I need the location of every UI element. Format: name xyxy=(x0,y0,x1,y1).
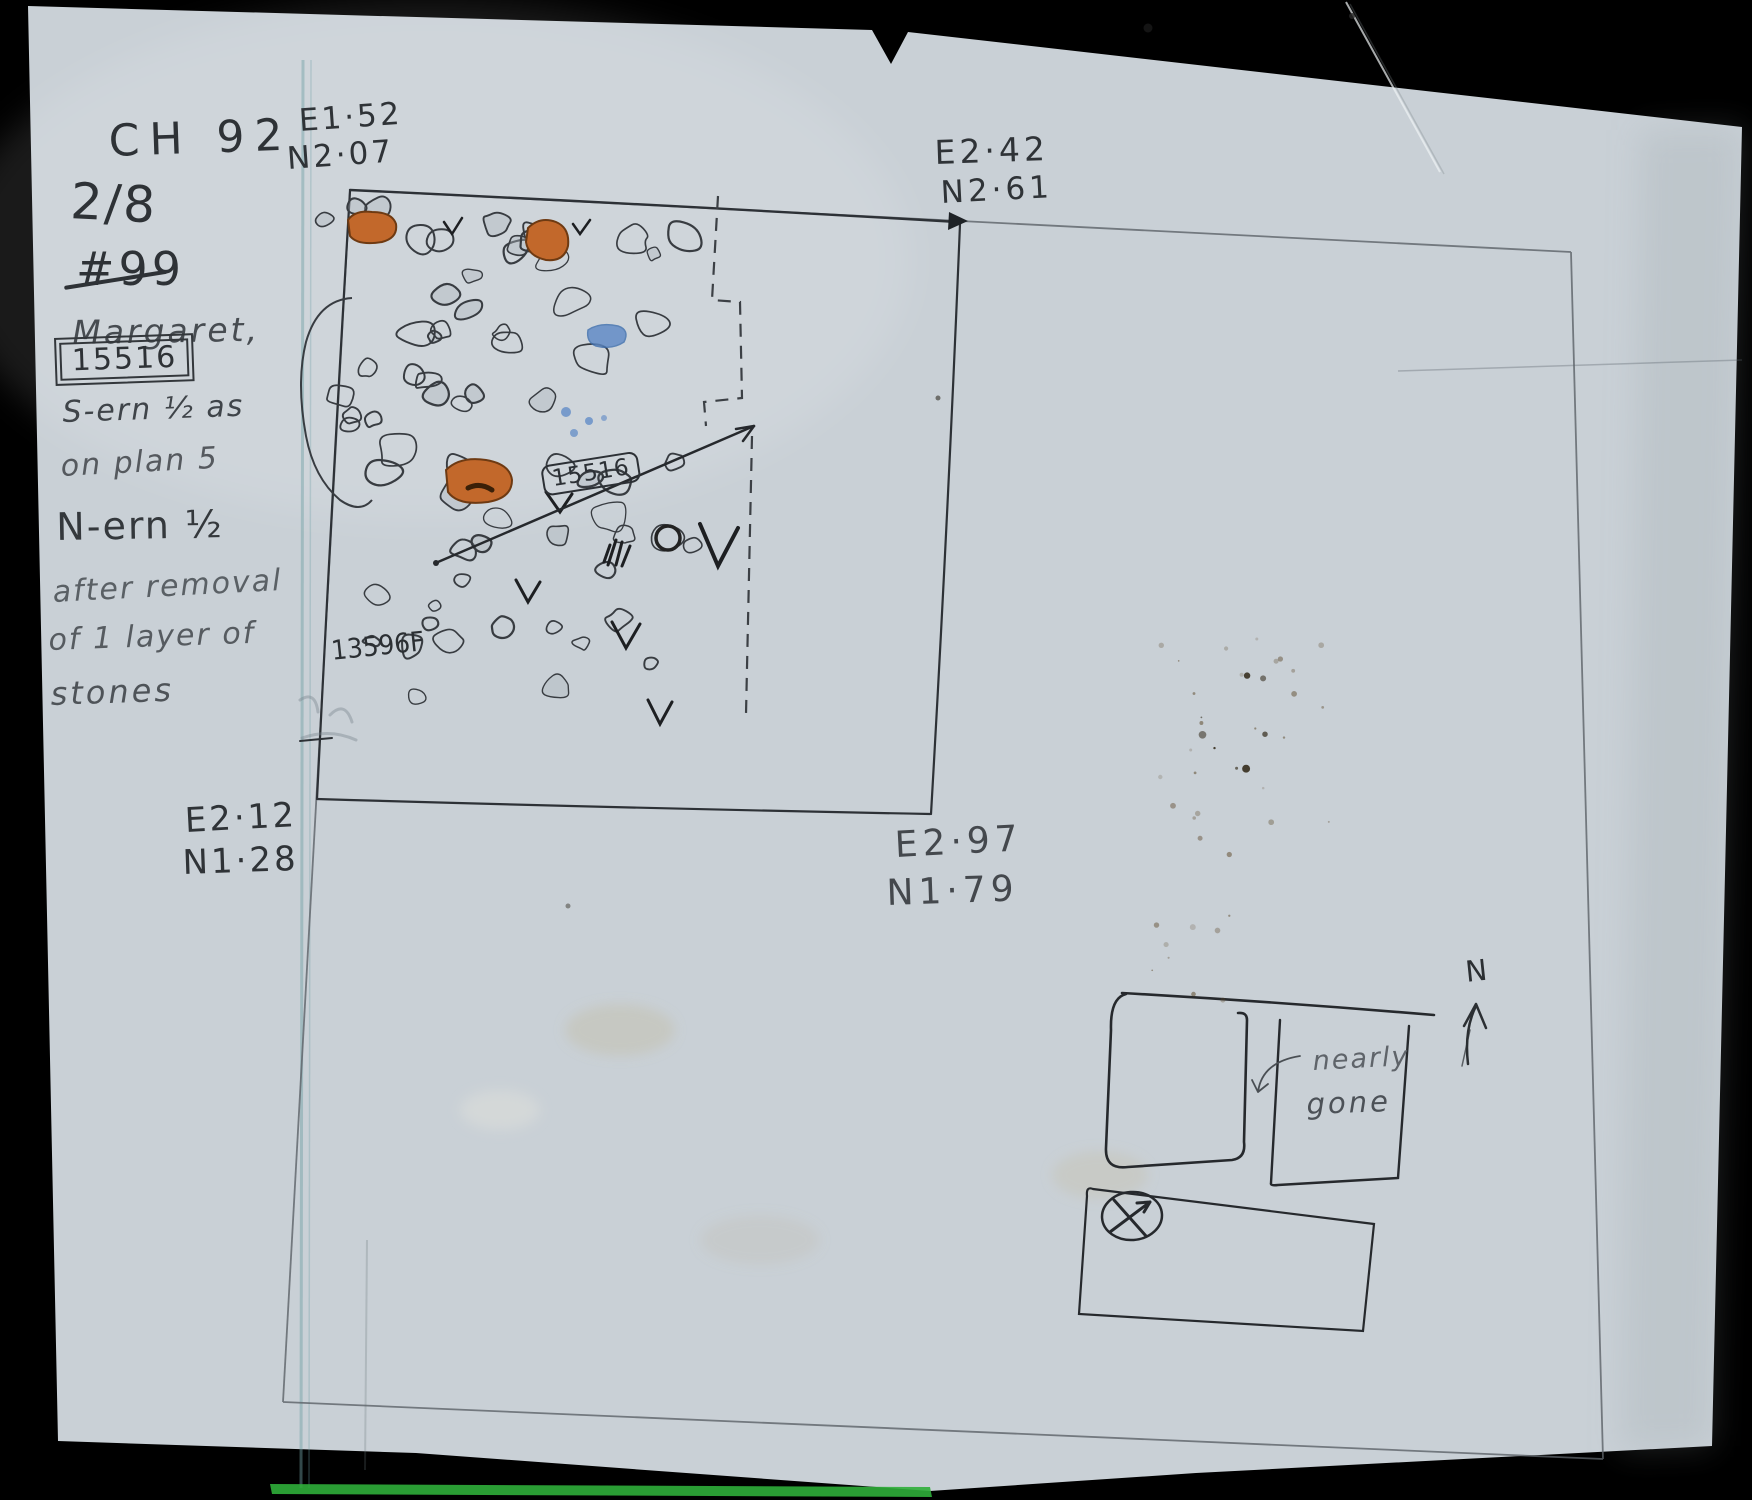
scanner-green-strip xyxy=(270,1484,932,1497)
stain-speckle xyxy=(1194,772,1197,775)
stain-speckle xyxy=(1191,992,1196,997)
arrow-origin-dot xyxy=(433,560,439,566)
stain-speckle xyxy=(1240,673,1244,677)
inset-note-line: gone xyxy=(1306,1087,1391,1119)
stain-speckle xyxy=(1198,836,1203,841)
site-code-annotation: CH 92 xyxy=(108,114,293,164)
inset-note-line: nearly xyxy=(1312,1043,1410,1075)
north-label: N xyxy=(1464,956,1489,987)
orange-stone xyxy=(526,220,568,260)
stain-speckle xyxy=(1260,675,1266,681)
stain-speckle xyxy=(1235,767,1238,770)
coordinate-bottom-left-e: E2·12 xyxy=(184,798,298,838)
coordinate-top-left-e: E1·52 xyxy=(298,99,404,137)
stain-yellow xyxy=(700,1215,820,1265)
stain-speckle xyxy=(1283,736,1285,738)
blue-dot xyxy=(570,429,578,437)
stain-speckle xyxy=(1321,706,1324,709)
boxed-find-number: 15516 xyxy=(54,333,195,386)
stain-speckle xyxy=(1291,691,1297,697)
scanned-field-drawing: CH 92 2/8 #99 Margaret, 15516 S-ern ½ as… xyxy=(0,0,1752,1500)
stain-speckle xyxy=(1195,811,1200,816)
stain-speckle xyxy=(1192,816,1196,820)
stain-speckle xyxy=(1254,727,1256,729)
blue-dot xyxy=(601,415,607,421)
stain-speckle xyxy=(1154,922,1159,927)
orange-stone xyxy=(446,459,512,503)
stain-speckle xyxy=(1278,656,1283,661)
blue-stone xyxy=(588,325,626,348)
coordinate-top-right-n: N2·61 xyxy=(940,172,1054,209)
stain-white xyxy=(460,1090,540,1130)
stain-speckle xyxy=(1190,924,1196,930)
blue-dot xyxy=(585,417,593,425)
note-line: stones xyxy=(50,674,174,710)
ink-dot xyxy=(936,396,941,401)
stain-speckle xyxy=(1242,765,1250,773)
note-line: of 1 layer of xyxy=(48,619,256,656)
stain-speckle xyxy=(1224,646,1228,650)
stain-speckle xyxy=(1227,852,1232,857)
stain-speckle xyxy=(1189,749,1192,752)
stain-speckle xyxy=(1213,747,1215,749)
stain-speckle xyxy=(1215,928,1221,934)
orange-stone xyxy=(348,212,396,243)
stain-speckle xyxy=(1168,957,1170,959)
stain-speckle xyxy=(1244,672,1250,678)
stain-speckle xyxy=(1328,821,1330,823)
ink-dot xyxy=(566,904,571,909)
stain-speckle xyxy=(1220,998,1225,1003)
blue-dot xyxy=(561,407,571,417)
stone xyxy=(547,526,568,546)
stain-speckle xyxy=(1255,638,1258,641)
coordinate-top-right-e: E2·42 xyxy=(934,132,1049,169)
stain-speckle xyxy=(1318,642,1324,648)
stain-speckle xyxy=(1151,969,1153,971)
stain-speckle xyxy=(1268,819,1274,825)
stain-speckle xyxy=(1199,731,1207,739)
stain-speckle xyxy=(1200,716,1202,718)
stain-speckle xyxy=(1178,660,1180,662)
stain-speckle xyxy=(1291,669,1295,673)
stain-speckle xyxy=(1170,803,1176,809)
stain-speckle xyxy=(1164,942,1169,947)
coordinate-bottom-left-n: N1·28 xyxy=(182,842,299,880)
stain-speckle xyxy=(1228,915,1230,917)
stain-yellow xyxy=(565,1004,675,1056)
note-line: on plan 5 xyxy=(60,444,220,482)
boxed-find-number-label: 15516 xyxy=(59,338,190,380)
stain-speckle xyxy=(1199,721,1203,725)
sheet-fraction-annotation: 2/8 xyxy=(69,176,158,230)
ink-dot xyxy=(1349,13,1355,19)
stain-speckle xyxy=(1193,692,1196,695)
note-line: S-ern ½ as xyxy=(62,392,245,428)
drawing-canvas xyxy=(0,0,1752,1500)
stain-speckle xyxy=(1158,775,1162,779)
coordinate-top-left-n: N2·07 xyxy=(286,137,395,175)
stain-speckle xyxy=(1159,643,1164,648)
coordinate-bottom-right-n: N1·79 xyxy=(886,871,1019,912)
stain-speckle xyxy=(1262,787,1265,790)
note-line: N-ern ½ xyxy=(56,505,224,546)
coordinate-bottom-right-e: E2·97 xyxy=(894,821,1024,864)
crease-line-vertical xyxy=(301,60,303,1488)
ink-dot xyxy=(1144,24,1153,33)
stain-speckle xyxy=(1262,731,1268,737)
paper-edge-shading xyxy=(1620,127,1742,1450)
